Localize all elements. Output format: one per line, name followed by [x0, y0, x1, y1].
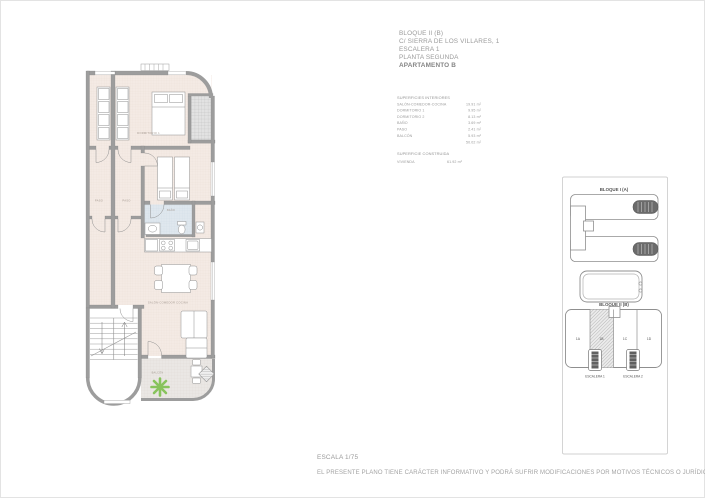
unit-label: 1B: [599, 337, 604, 341]
title-bloque: BLOQUE II (B): [399, 30, 499, 38]
surface-row-value: 9.95 m²: [468, 109, 482, 113]
surface-row-value: 2.41 m²: [468, 128, 482, 132]
stair-block-icon: [633, 243, 658, 256]
floor-plan: DORMITORIO 1 PASO PASO BAÑO SALÓN-COMEDO…: [80, 56, 230, 416]
room-label-paso-right: PASO: [122, 199, 130, 203]
title-apartamento: APARTAMENTO B: [399, 62, 499, 70]
bathroom-sink: [145, 223, 160, 235]
surface-row-label: DORMITORIO 1: [397, 109, 425, 113]
surface-row-label: BAÑO: [397, 120, 408, 125]
title-planta: PLANTA SEGUNDA: [399, 54, 499, 62]
chair: [189, 281, 197, 290]
kitchen-counter: [145, 239, 212, 253]
built-title: SUPERFICIE CONSTRUIDA: [397, 151, 450, 156]
unit-label: 1C: [623, 337, 628, 341]
room-label-balcon: BALCÓN: [152, 372, 164, 375]
room-label-dormitorio1: DORMITORIO 1: [137, 131, 160, 135]
wardrobe: [116, 87, 129, 140]
site-map: BLOQUE I (A): [558, 174, 672, 458]
built-row-label: VIVIENDA: [397, 160, 415, 164]
surface-row-value: 5.93 m²: [468, 134, 482, 138]
building-b: 1A 1B 1C 1D: [566, 307, 662, 379]
washer-column: [196, 222, 204, 233]
wardrobe-neighbor: [97, 87, 110, 140]
title-escalera: ESCALERA 1: [399, 46, 499, 54]
chair: [155, 281, 163, 290]
notch: [584, 221, 594, 231]
surfaces-title: SUPERFICIES INTERIORES: [397, 95, 450, 100]
stove-icon: [160, 240, 175, 252]
scale-label: ESCALA 1/75: [317, 454, 358, 461]
surface-row-value: 3.69 m²: [468, 121, 482, 125]
unit-label: 1A: [576, 337, 581, 341]
surface-row-label: PASO: [397, 128, 407, 132]
built-row-value: 61.92 m²: [447, 160, 463, 164]
room-label-bano: BAÑO: [167, 209, 175, 212]
unit-label: 1D: [647, 337, 652, 341]
disclaimer-text: EL PRESENTE PLANO TIENE CARÁCTER INFORMA…: [317, 470, 705, 476]
bloque-a-label: BLOQUE I (A): [600, 187, 629, 192]
surface-row-value: 19.91 m²: [466, 102, 482, 106]
chair: [193, 378, 201, 384]
pool-icon: [580, 271, 642, 302]
escalera-1-label: ESCALERA 1: [585, 375, 605, 379]
surface-row-label: DORMITORIO 2: [397, 115, 425, 119]
title-street: C/ SIERRA DE LOS VILLARES, 1: [399, 38, 499, 46]
surfaces-table: SUPERFICIES INTERIORES SALÓN-COMEDOR-COC…: [394, 90, 494, 170]
plan-sheet: DORMITORIO 1 PASO PASO BAÑO SALÓN-COMEDO…: [0, 0, 705, 498]
double-bed: [152, 92, 185, 135]
terrace-floor: [191, 96, 212, 140]
surface-row-label: SALÓN-COMEDOR-COCINA: [397, 101, 447, 106]
kitchen-sink-icon: [186, 240, 200, 252]
stair-block-icon: [633, 201, 658, 214]
room-label-paso-left: PASO: [95, 199, 103, 203]
surfaces-total: 50.02 m²: [466, 141, 482, 145]
chair: [193, 360, 201, 366]
chair: [189, 266, 197, 275]
surface-row-label: BALCÓN: [397, 133, 413, 138]
balcony-floor: [141, 358, 214, 400]
escalera-2-label: ESCALERA 2: [623, 375, 643, 379]
notch: [609, 307, 620, 318]
stair-tower-icon: [627, 350, 640, 371]
plant-icon: [152, 379, 169, 396]
chair: [155, 266, 163, 275]
stair-tower-icon: [589, 350, 602, 371]
title-block: BLOQUE II (B) C/ SIERRA DE LOS VILLARES,…: [399, 30, 499, 70]
toilet-icon: [178, 222, 187, 234]
surface-row-value: 8.13 m²: [468, 115, 482, 119]
